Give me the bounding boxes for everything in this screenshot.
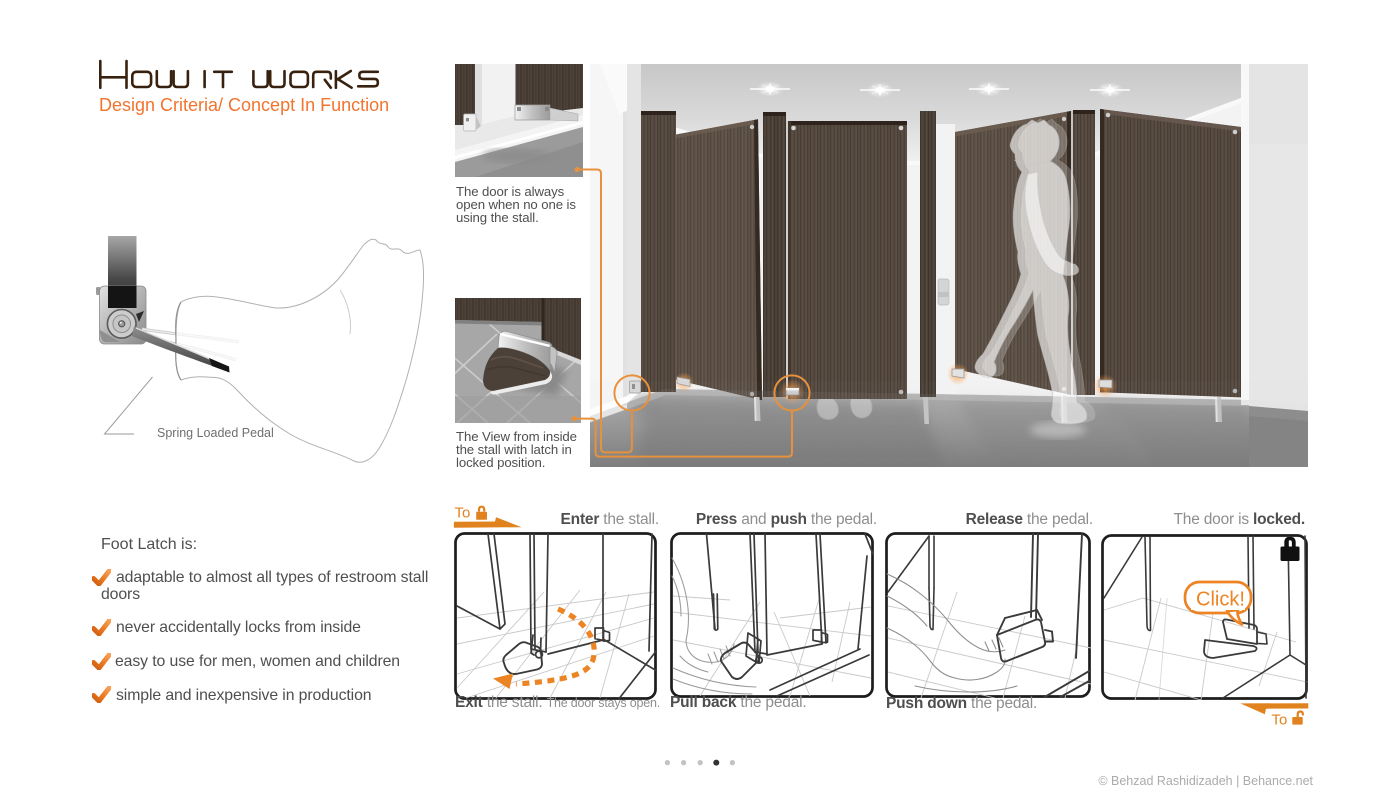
svg-text:Click!: Click! <box>1196 589 1245 611</box>
svg-text:To: To <box>1272 711 1288 728</box>
